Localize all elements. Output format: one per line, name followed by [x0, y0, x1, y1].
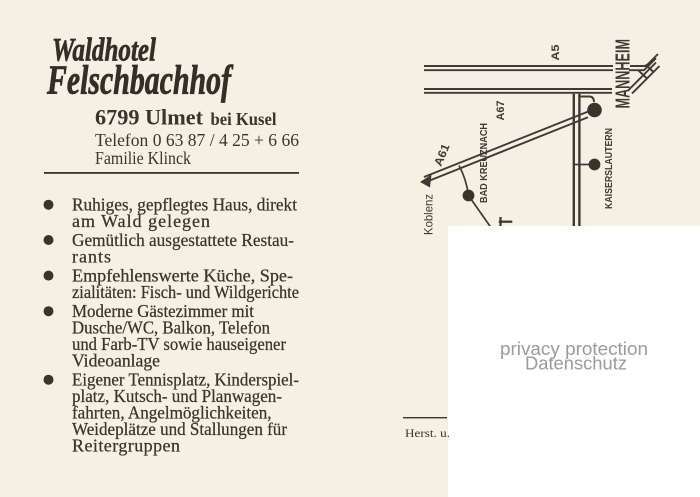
svg-text:Telefon 0 63 87 / 4 25 + 6 66: Telefon 0 63 87 / 4 25 + 6 66: [95, 130, 299, 150]
svg-text:bei Kusel: bei Kusel: [211, 109, 277, 129]
svg-text:A67: A67: [495, 101, 507, 121]
svg-text:Familie Klinck: Familie Klinck: [95, 148, 191, 168]
svg-text:6799 Ulmet: 6799 Ulmet: [95, 105, 204, 130]
svg-text:MANNHEIM: MANNHEIM: [613, 39, 635, 109]
svg-text:Felschbachhof: Felschbachhof: [46, 57, 234, 103]
svg-text:KAISERSLAUTERN: KAISERSLAUTERN: [604, 128, 615, 209]
svg-text:am Wald gelegen: am Wald gelegen: [72, 211, 210, 231]
svg-text:Koblenz: Koblenz: [422, 194, 436, 235]
svg-text:Reitergruppen: Reitergruppen: [72, 436, 180, 456]
svg-text:Videoanlage: Videoanlage: [72, 351, 160, 371]
svg-text:Herst. u.: Herst. u.: [405, 426, 450, 440]
svg-text:A5: A5: [550, 45, 562, 61]
svg-text:rants: rants: [72, 246, 111, 266]
svg-text:Datenschutz: Datenschutz: [525, 353, 627, 374]
svg-text:zialitäten: Fisch- und Wildger: zialitäten: Fisch- und Wildgerichte: [72, 282, 299, 302]
svg-text:BAD KREUZNACH: BAD KREUZNACH: [479, 123, 490, 203]
